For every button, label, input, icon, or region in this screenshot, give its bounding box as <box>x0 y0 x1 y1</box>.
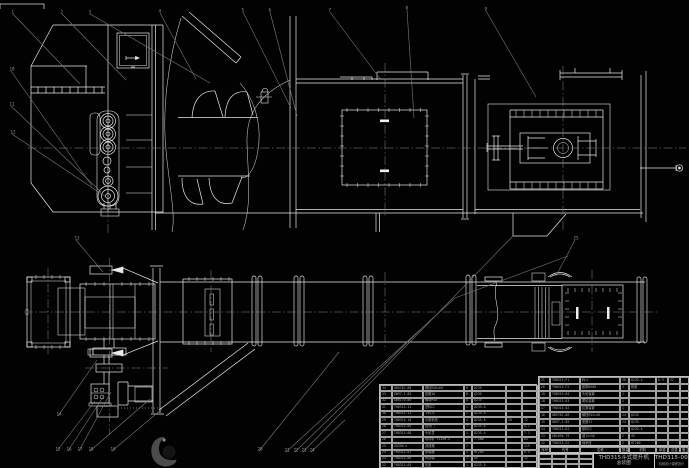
drawing-number: THD315-00 <box>655 455 688 462</box>
leader-line <box>243 12 291 108</box>
bom-cell <box>656 398 668 405</box>
bom-cell <box>680 377 689 384</box>
bom-cell: Q235 <box>629 419 656 426</box>
bom-cell <box>680 419 689 426</box>
bom-cell <box>668 419 680 426</box>
callout-number: 17 <box>78 447 84 452</box>
callout-number: 11 <box>10 102 16 107</box>
bom-cell <box>656 405 668 412</box>
callout-number: 21 <box>285 448 291 453</box>
revision-cell <box>579 464 592 468</box>
bom-cell: THD315-03 <box>550 398 580 405</box>
bom-cell: 21 <box>539 377 550 384</box>
revision-grid <box>539 454 593 468</box>
bom-cell: Q235-A <box>629 377 656 384</box>
callout-number: 4 <box>159 9 162 14</box>
bom-cell: 1 <box>620 405 629 412</box>
bom-cell: Q235-A <box>472 462 506 468</box>
bom-cell <box>680 426 689 433</box>
bom-cell <box>629 391 656 398</box>
bom-cell <box>506 462 522 468</box>
leader-line <box>79 392 111 451</box>
leader-line <box>160 13 196 79</box>
bom-cell <box>680 391 689 398</box>
bom-cell: 0.9 <box>656 377 668 384</box>
leader-line <box>330 12 381 80</box>
leader-line <box>90 399 150 451</box>
bom-cell: 1 <box>620 426 629 433</box>
bom-cell: 胶带B500 <box>580 384 620 391</box>
bom-cell: GB5782-86 <box>550 412 580 419</box>
bom-cell: 螺栓M12×40 <box>580 412 620 419</box>
bom-cell: 机座 <box>423 462 464 468</box>
bom-cell <box>656 384 668 391</box>
bom-cell: GB97.1-85 <box>550 419 580 426</box>
bom-cell: Q235-A <box>629 426 656 433</box>
bom-cell: 1 <box>620 384 629 391</box>
bom-table-right: 21THD315-F1料斗36Q235-A0.93220THD315-F2胶带B… <box>538 376 689 446</box>
bom-cell: 14 <box>539 426 550 433</box>
bom-cell: 料斗 <box>580 377 620 384</box>
callout-number: 1 <box>12 10 15 15</box>
bom-cell: 1 <box>620 398 629 405</box>
leader-line <box>259 352 339 451</box>
bom-cell: 卸料口 <box>580 426 620 433</box>
callout-number: 15 <box>56 447 62 452</box>
bom-cell <box>680 405 689 412</box>
callout-number: 14 <box>57 412 63 417</box>
callout-number: 24 <box>310 448 316 453</box>
bom-cell <box>668 426 680 433</box>
callout-number: 3 <box>89 10 92 15</box>
bom-cell: 24 <box>620 412 629 419</box>
callout-number: 25 <box>574 236 580 241</box>
leader-line <box>57 401 95 451</box>
bom-cell <box>656 433 668 440</box>
bom-cell: 45 <box>629 433 656 440</box>
leader-line <box>62 14 126 80</box>
bom-cell <box>629 398 656 405</box>
organization: 机械设计课程设计 <box>659 462 685 466</box>
callout-number: 22 <box>294 448 300 453</box>
callout-number: 19 <box>111 447 117 452</box>
bom-cell: 17 <box>539 405 550 412</box>
bom-cell <box>668 405 680 412</box>
bom-cell: THD315-02 <box>550 405 580 412</box>
callout-number: 6 <box>269 8 272 13</box>
bom-cell: 36 <box>620 377 629 384</box>
title-cell: THD315斗式提升机 总装图 <box>593 454 655 468</box>
bom-cell: 垫圈12 <box>580 419 620 426</box>
bom-cell <box>680 433 689 440</box>
callout-number: 7 <box>329 8 332 13</box>
bom-cell: 20 <box>539 384 550 391</box>
callout-number: 13 <box>75 236 81 241</box>
bom-cell: 尾轮装置 <box>580 398 620 405</box>
leader-line <box>556 240 575 276</box>
bom-cell: 键12×56 <box>580 433 620 440</box>
bom-cell: 13 <box>539 433 550 440</box>
bom-cell <box>656 419 668 426</box>
bom-cell: THD315-F1 <box>550 377 580 384</box>
drawing-number-cell: THD315-00 机械设计课程设计 <box>655 454 688 468</box>
revision-cell <box>539 464 552 468</box>
bom-cell: 19 <box>539 391 550 398</box>
callout-number: 12 <box>11 130 17 135</box>
leader-line <box>407 10 414 118</box>
leader-line <box>76 240 103 272</box>
bom-cell: 1 <box>620 391 629 398</box>
bom-cell: 2 <box>620 433 629 440</box>
callout-number: 18 <box>89 447 95 452</box>
leader-line <box>13 14 80 84</box>
top-view <box>31 12 683 236</box>
bom-cell <box>656 391 668 398</box>
callout-number: 9 <box>485 7 488 12</box>
logo-blob <box>151 437 176 467</box>
callout-number: 8 <box>406 6 409 11</box>
bom-cell: 18 <box>539 398 550 405</box>
bom-cell: 拉紧装置 <box>580 405 620 412</box>
bom-cell <box>680 384 689 391</box>
bom-cell <box>680 398 689 405</box>
bom-cell <box>668 412 680 419</box>
bom-cell: 16 <box>539 412 550 419</box>
bom-cell <box>522 462 538 468</box>
leader-line <box>68 397 103 451</box>
callout-number: 2 <box>61 10 64 15</box>
sheet-name: 总装图 <box>617 461 631 467</box>
bom-cell <box>680 412 689 419</box>
bom-cell: THD315-05 <box>392 462 423 468</box>
bom-cell: THD315-04 <box>550 391 580 398</box>
leader-line <box>270 12 297 116</box>
bom-cell: THD315-01 <box>550 426 580 433</box>
revision-cell <box>566 464 579 468</box>
bom-cell: 橡胶 <box>629 384 656 391</box>
sheet-border-corner <box>0 4 44 9</box>
leader-line <box>11 71 92 186</box>
bom-table-left: 34GB5782-86螺栓M16×608Q23533GB97.1-85垫圈168… <box>379 384 537 468</box>
bom-cell: THD315-F2 <box>550 384 580 391</box>
leader-line <box>11 106 101 192</box>
bom-cell: 1 <box>464 462 472 468</box>
bom-cell: 15 <box>539 419 550 426</box>
title-block: THD315斗式提升机 总装图 THD315-00 机械设计课程设计 <box>538 453 689 468</box>
bom-cell <box>668 433 680 440</box>
cad-canvas[interactable]: 1234567891011121314151617181920212223242… <box>0 0 689 468</box>
bom-cell: Q235 <box>629 412 656 419</box>
bom-cell: 22 <box>380 462 392 468</box>
callout-number: 23 <box>302 448 308 453</box>
bom-cell <box>668 391 680 398</box>
bom-cell <box>668 384 680 391</box>
callout-number: 16 <box>67 447 73 452</box>
bom-cell <box>656 412 668 419</box>
bom-cell: 32 <box>668 377 680 384</box>
bom-cell <box>668 398 680 405</box>
bom-cell: GB1096-79 <box>550 433 580 440</box>
bom-cell <box>629 405 656 412</box>
bom-cell <box>656 426 668 433</box>
bom-cell: 24 <box>620 419 629 426</box>
callout-number: 5 <box>242 8 245 13</box>
callout-number: 10 <box>10 67 16 72</box>
leader-line <box>486 11 536 97</box>
bom-cell: 头轮装置 <box>580 391 620 398</box>
callout-number: 20 <box>258 447 264 452</box>
leader-line <box>12 134 106 197</box>
revision-cell <box>552 464 565 468</box>
